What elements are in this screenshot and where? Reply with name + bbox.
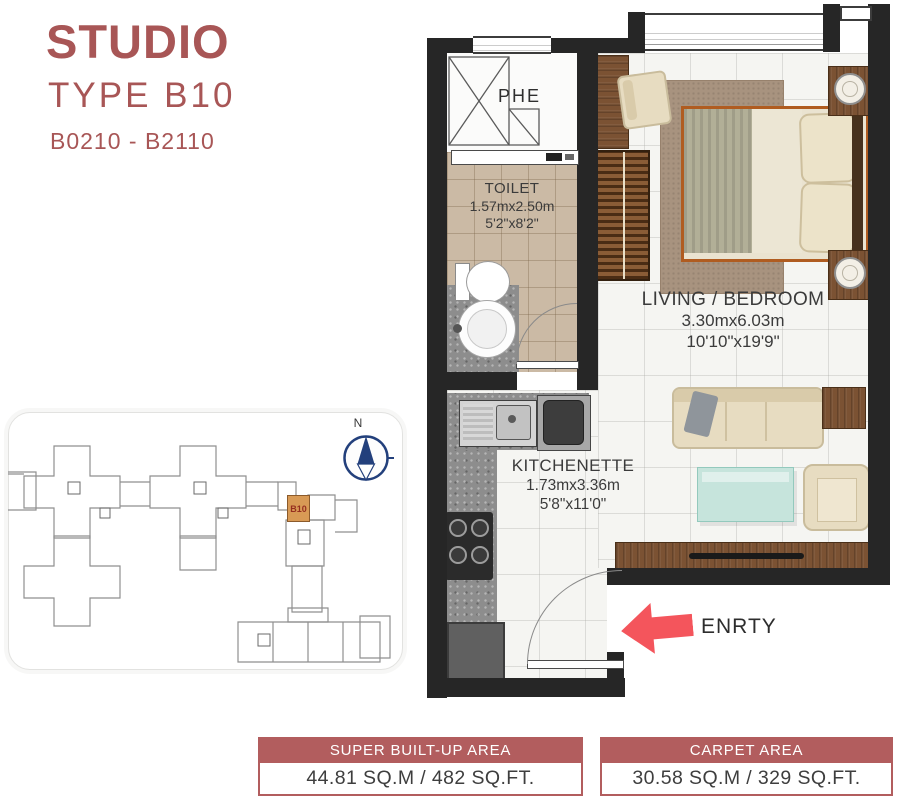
burner-icon [449, 519, 467, 537]
living-bedroom-dim-m: 3.30mx6.03m [633, 311, 833, 332]
bed-sheet [752, 109, 802, 253]
burner-icon [471, 546, 489, 564]
entry-arrow-icon [619, 596, 696, 660]
sofa [672, 387, 824, 449]
chair-back [622, 80, 637, 121]
wash-basin [458, 300, 516, 358]
coffee-table-glass [702, 472, 789, 482]
living-bedroom-label-block: LIVING / BEDROOM 3.30mx6.03m 10'10"x19'9… [633, 288, 833, 353]
kitchenette-label: KITCHENETTE [478, 456, 668, 477]
armchair-seat [817, 478, 857, 522]
toilet-label: TOILET [447, 180, 577, 198]
area-bar-label: SUPER BUILT-UP AREA [258, 737, 583, 763]
toilet-dim-m: 1.57mx2.50m [447, 198, 577, 215]
wall-left [427, 38, 447, 698]
area-bar-value: 30.58 SQ.M / 329 SQ.FT. [600, 763, 893, 796]
gas-stove [445, 512, 493, 580]
window-bedroom [645, 13, 823, 51]
living-bedroom-label: LIVING / BEDROOM [633, 288, 833, 311]
ledge-fixture [546, 153, 562, 161]
basin-inner [467, 309, 507, 349]
sink-drainboard [463, 404, 493, 440]
washing-machine [447, 622, 505, 680]
wall-pillar-top-right [823, 4, 840, 52]
entry-label: ENRTY [701, 615, 777, 639]
living-bedroom-dim-ft: 10'10"x19'9" [633, 332, 833, 353]
kitchenette-label-block: KITCHENETTE 1.73mx3.36m 5'8"x11'0" [478, 456, 668, 515]
basin-faucet-icon [453, 324, 462, 333]
bed-blanket [684, 109, 752, 253]
compass-icon [338, 430, 396, 488]
pillow [799, 112, 857, 184]
area-bar-super-builtup: SUPER BUILT-UP AREA 44.81 SQ.M / 482 SQ.… [258, 737, 583, 796]
pillow [799, 182, 857, 254]
key-plan-unit-b10: B10 [287, 495, 310, 522]
floor-plan-brochure: STUDIO TYPE B10 B0210 - B2110 PHE [0, 0, 900, 810]
toilet-wc-bowl [466, 261, 510, 303]
wall-toilet-bottom [447, 372, 517, 390]
wall-right [868, 4, 890, 585]
wall-pillar-top-left [628, 12, 645, 53]
phe-ledge [451, 150, 579, 165]
wall-living-bottom [607, 568, 890, 585]
compass-north-label: N [354, 416, 363, 430]
table-lamp-icon [834, 257, 866, 289]
side-table [822, 387, 866, 429]
armchair [803, 464, 870, 531]
appliance-door [543, 400, 584, 445]
window-small-top-right [840, 6, 872, 21]
toilet-dim-ft: 5'2"x8'2" [447, 215, 577, 232]
kitchenette-dim-m: 1.73mx3.36m [478, 477, 668, 496]
coffee-table [697, 467, 794, 522]
burner-icon [471, 519, 489, 537]
wall-bottom [427, 678, 625, 697]
tv-console [615, 542, 870, 571]
bed [681, 106, 869, 262]
phe-room-label: PHE [498, 86, 541, 107]
floor-plan: PHE TOILET 1.57mx2.50m 5' [0, 0, 900, 810]
sink-faucet-icon [508, 415, 516, 423]
kitchen-sink [459, 400, 537, 447]
kitchenette-dim-ft: 5'8"x11'0" [478, 496, 668, 515]
area-bar-label: CARPET AREA [600, 737, 893, 763]
wall-interior-vertical [577, 38, 598, 390]
area-bar-carpet: CARPET AREA 30.58 SQ.M / 329 SQ.FT. [600, 737, 893, 796]
table-lamp-icon [834, 73, 866, 105]
window-phe [473, 36, 551, 54]
burner-icon [449, 546, 467, 564]
wardrobe [596, 150, 650, 281]
ledge-fixture [565, 154, 574, 160]
toilet-label-block: TOILET 1.57mx2.50m 5'2"x8'2" [447, 180, 577, 232]
bedroom-chair [616, 70, 672, 130]
area-bar-value: 44.81 SQ.M / 482 SQ.FT. [258, 763, 583, 796]
kitchen-appliance [537, 395, 591, 451]
tv-icon [689, 553, 804, 559]
bed-headboard [852, 109, 863, 253]
